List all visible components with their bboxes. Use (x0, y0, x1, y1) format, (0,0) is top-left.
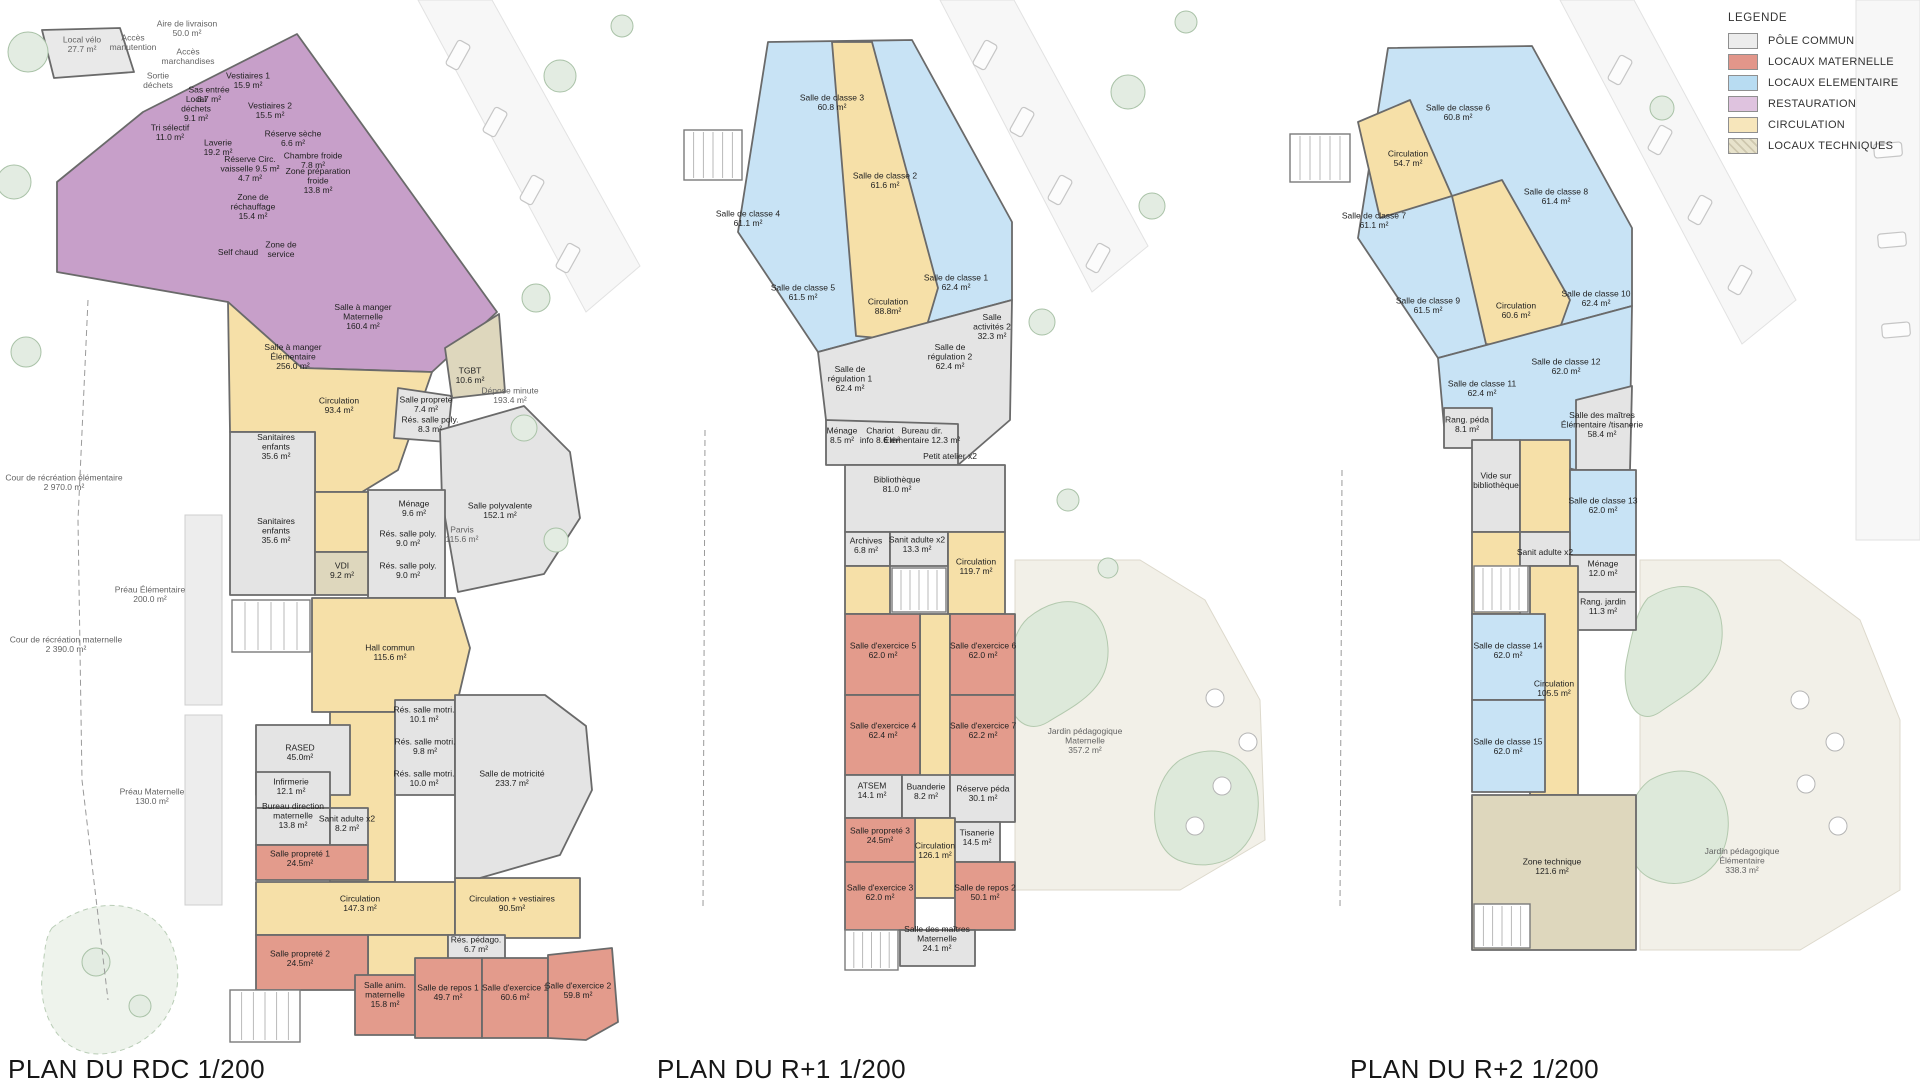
site-label: Aire de livraison50.0 m² (157, 19, 218, 39)
tree-icon (0, 165, 31, 199)
planted-area (1627, 771, 1729, 884)
tree-icon (1650, 96, 1674, 120)
room-label: Circulation93.4 m² (319, 396, 359, 416)
room-label: Ménage9.6 m² (399, 499, 430, 519)
garden-table-icon (1826, 733, 1844, 751)
room-label: Infirmerie12.1 m² (273, 777, 309, 797)
room-label: Circulation126.1 m² (915, 841, 955, 861)
room-label: Ménage8.5 m² (827, 426, 858, 446)
tree-icon (1139, 193, 1165, 219)
parcel-boundary (1340, 470, 1342, 910)
room-label: Tri sélectif11.0 m² (151, 123, 190, 143)
room-label: Petit atelier x2 (923, 451, 977, 461)
site-plan-canvas: Sas entrée8.7 m²Vestiaires 115.9 m²Vesti… (0, 0, 1920, 1091)
garden-table-icon (1239, 733, 1257, 751)
site-label: Cour de récréation maternelle2 390.0 m² (10, 635, 123, 655)
covered-playground (185, 715, 222, 905)
site-label: Sortiedéchets (143, 71, 173, 91)
room-label: Self chaud (218, 247, 258, 257)
garden-table-icon (1186, 817, 1204, 835)
site-label: Dépose minute193.4 m² (481, 386, 538, 406)
tree-icon (129, 995, 151, 1017)
legend-item-4: CIRCULATION (1728, 116, 1920, 133)
room-label: Sanitairesenfants35.6 m² (257, 516, 295, 545)
room-label: Archives6.8 m² (850, 536, 883, 556)
legend: LEGENDE PÔLE COMMUNLOCAUX MATERNELLELOCA… (1728, 12, 1920, 158)
tree-icon (511, 415, 537, 441)
room-label: Circulation119.7 m² (956, 557, 996, 577)
tree-icon (1098, 558, 1118, 578)
room-label: Sanitairesenfants35.6 m² (257, 432, 295, 461)
legend-items: PÔLE COMMUNLOCAUX MATERNELLELOCAUX ELEME… (1728, 32, 1920, 154)
playground-area (42, 905, 178, 1054)
plan-title-r1: PLAN DU R+1 1/200 (657, 1054, 906, 1085)
legend-swatch-1 (1728, 54, 1758, 70)
garden-table-icon (1213, 777, 1231, 795)
legend-item-5: LOCAUX TECHNIQUES (1728, 137, 1920, 154)
tree-icon (11, 337, 41, 367)
site-label: Préau Élémentaire200.0 m² (115, 585, 186, 605)
zone-circulation (920, 614, 950, 795)
tree-icon (1057, 489, 1079, 511)
site-label: Local vélo27.7 m² (63, 35, 102, 55)
room-label: Circulation147.3 m² (340, 894, 380, 914)
room-label: Zone deservice (265, 240, 296, 260)
legend-swatch-5 (1728, 138, 1758, 154)
parked-car-icon (1881, 322, 1910, 338)
room-label: Circulation60.6 m² (1496, 301, 1536, 321)
zone-circulation (845, 566, 890, 614)
site-label: Préau Maternelle130.0 m² (120, 787, 185, 807)
legend-label-0: PÔLE COMMUN (1768, 35, 1854, 47)
tree-icon (611, 15, 633, 37)
room-label: Sanit adulte x2 (1517, 547, 1574, 557)
room-label: Circulation54.7 m² (1388, 149, 1428, 169)
zone-commun (440, 406, 580, 592)
legend-label-4: CIRCULATION (1768, 119, 1845, 131)
tree-icon (544, 528, 568, 552)
garden-table-icon (1797, 775, 1815, 793)
room-label: Tisanerie14.5 m² (960, 828, 995, 848)
garden-table-icon (1206, 689, 1224, 707)
plan-title-r2: PLAN DU R+2 1/200 (1350, 1054, 1599, 1085)
room-label: Ménage12.0 m² (1588, 559, 1619, 579)
tree-icon (1111, 75, 1145, 109)
zone-circulation (1520, 440, 1570, 532)
garden-table-icon (1829, 817, 1847, 835)
legend-label-1: LOCAUX MATERNELLE (1768, 56, 1894, 68)
legend-item-3: RESTAURATION (1728, 95, 1920, 112)
legend-label-5: LOCAUX TECHNIQUES (1768, 140, 1893, 152)
site-label: Cour de récréation élémentaire2 970.0 m² (5, 473, 122, 493)
tree-icon (82, 948, 110, 976)
floor-plans-drawing: Sas entrée8.7 m²Vestiaires 115.9 m²Vesti… (0, 0, 1920, 1091)
legend-swatch-0 (1728, 33, 1758, 49)
legend-title: LEGENDE (1728, 12, 1920, 24)
legend-swatch-4 (1728, 117, 1758, 133)
legend-swatch-2 (1728, 75, 1758, 91)
legend-label-2: LOCAUX ELEMENTAIRE (1768, 77, 1899, 89)
room-label: RASED45.0m² (285, 743, 314, 763)
zone-commun (845, 465, 1005, 532)
plan-title-rdc: PLAN DU RDC 1/200 (8, 1054, 265, 1085)
legend-item-0: PÔLE COMMUN (1728, 32, 1920, 49)
garden-table-icon (1791, 691, 1809, 709)
covered-playground (185, 515, 222, 705)
tree-icon (1175, 11, 1197, 33)
site-label: Parvis115.6 m² (446, 525, 479, 545)
room-label: ATSEM14.1 m² (858, 781, 887, 801)
room-label: TGBT10.6 m² (456, 366, 485, 386)
parked-car-icon (1877, 232, 1906, 248)
zone-restauration (57, 34, 497, 372)
legend-swatch-3 (1728, 96, 1758, 112)
zone-circulation (315, 492, 368, 552)
room-label: Circulation105.5 m² (1534, 679, 1574, 699)
tree-icon (522, 284, 550, 312)
legend-item-2: LOCAUX ELEMENTAIRE (1728, 74, 1920, 91)
tree-icon (544, 60, 576, 92)
tree-icon (8, 32, 48, 72)
site-label: Accèsmarchandises (162, 47, 215, 67)
legend-item-1: LOCAUX MATERNELLE (1728, 53, 1920, 70)
tree-icon (1029, 309, 1055, 335)
legend-label-3: RESTAURATION (1768, 98, 1856, 110)
parcel-boundary (703, 430, 705, 910)
